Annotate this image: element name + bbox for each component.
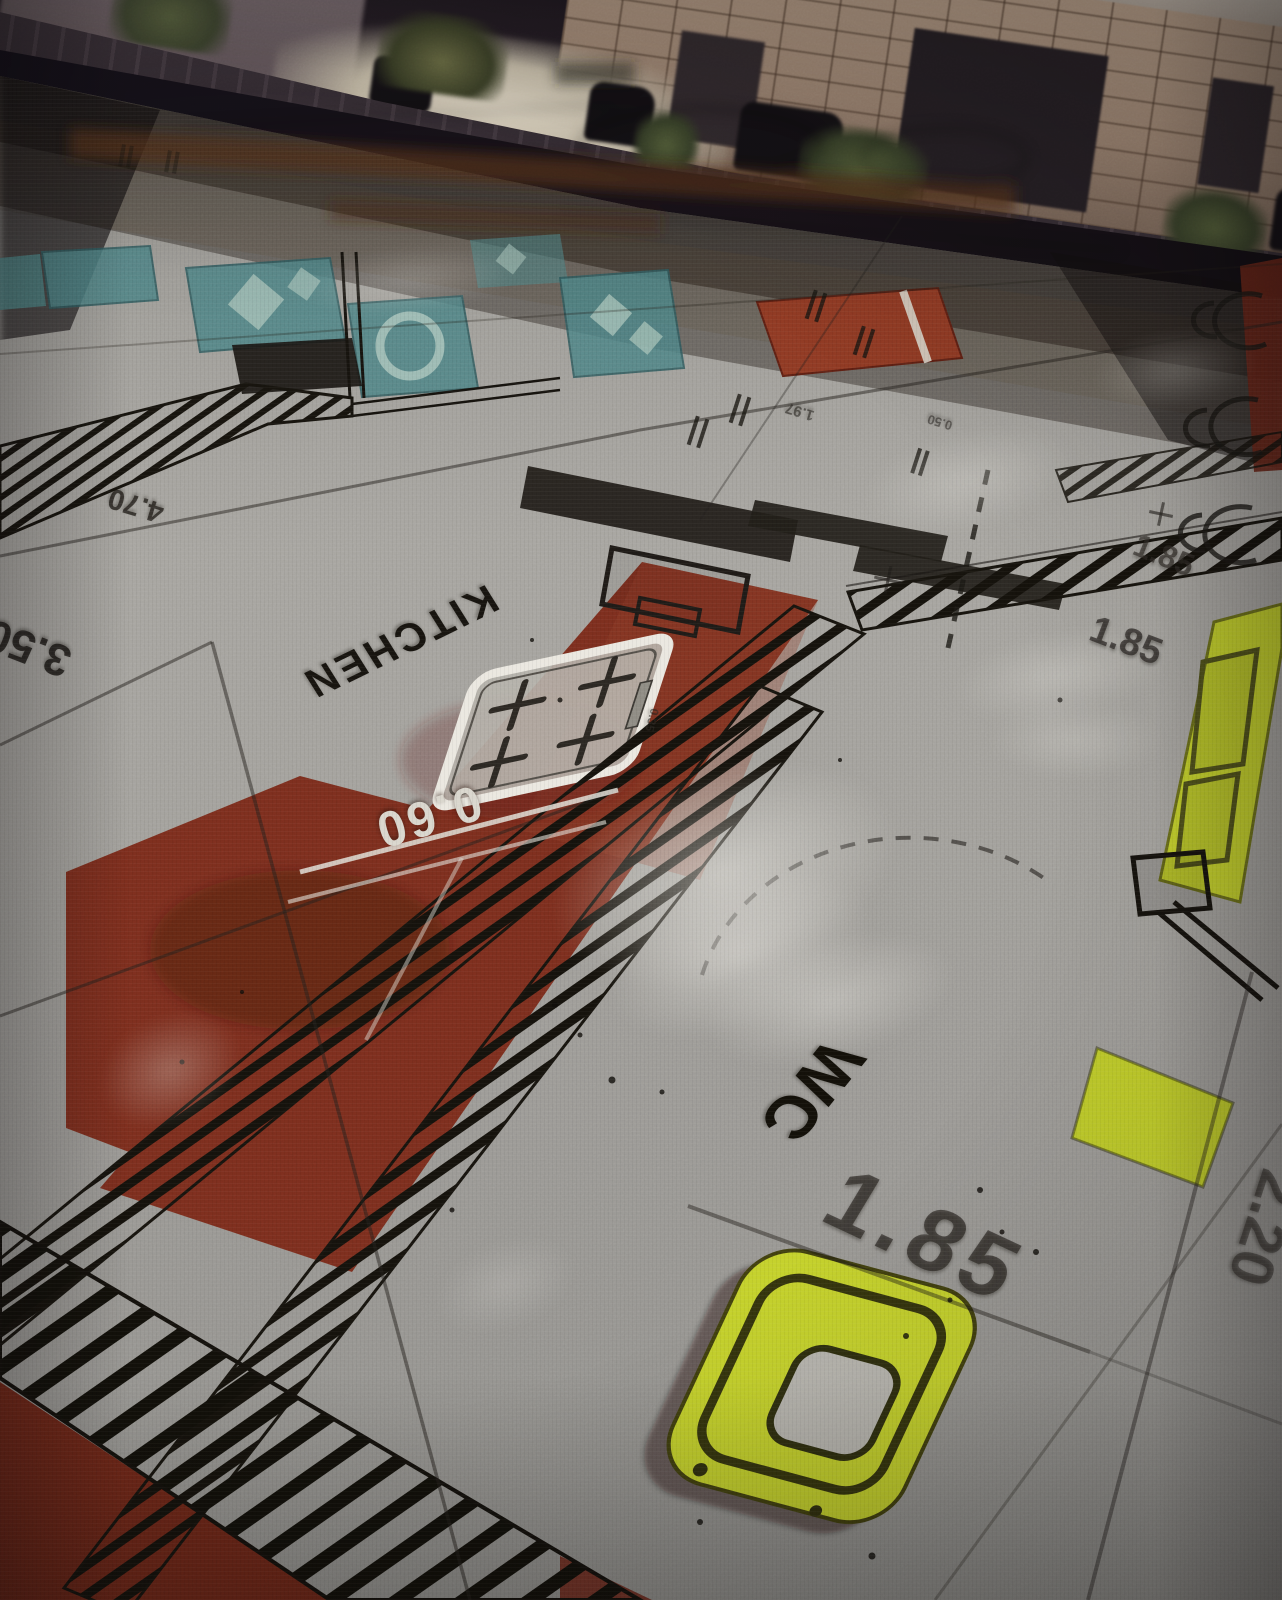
toilet-icon (627, 1235, 992, 1550)
immersive-room-photo: KITCHEN WC 0.60 4.70 3.50 1.85 1.85 1.85… (0, 0, 1282, 1600)
wall-outline-box (1133, 852, 1210, 914)
hatched-wall (1056, 432, 1282, 502)
red-rug-zone (757, 288, 962, 376)
floor-plan-projection (0, 0, 1282, 1600)
yellow-mat-zone (1072, 1048, 1233, 1187)
distant-plan-fragments (70, 62, 1120, 250)
hatched-wall (0, 384, 352, 538)
